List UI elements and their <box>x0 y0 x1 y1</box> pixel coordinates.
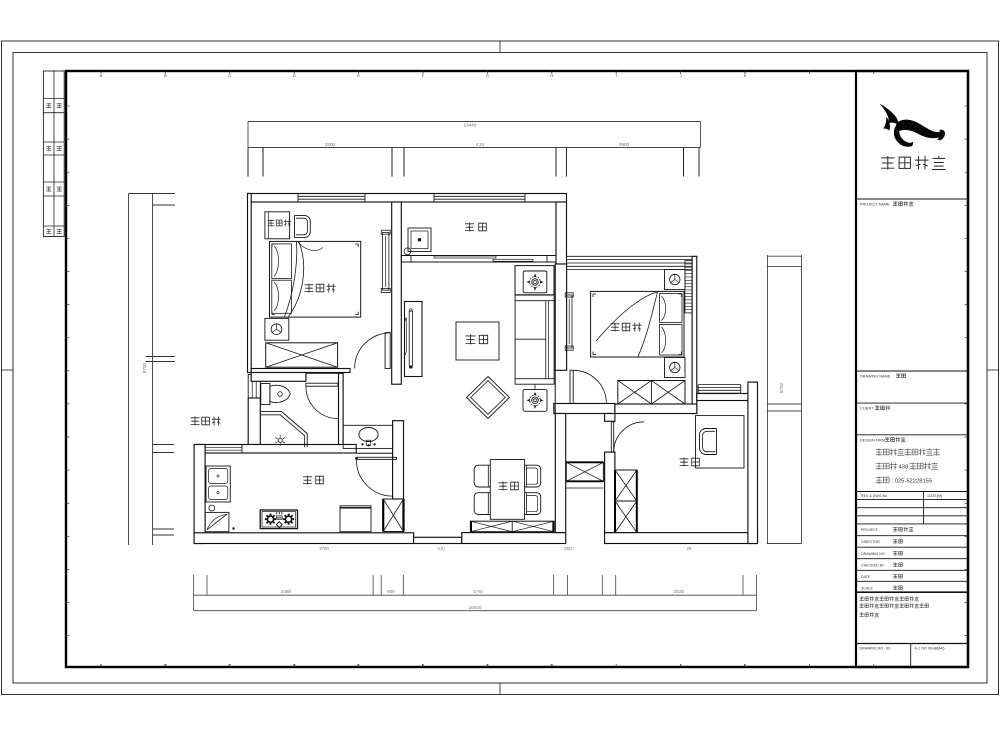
svg-text:10040: 10040 <box>469 605 482 610</box>
svg-text:DATE: DATE <box>861 575 871 579</box>
svg-text:DRAWING NO: DRAWING NO <box>861 552 885 556</box>
svg-text:25: 25 <box>687 546 692 551</box>
svg-text:4;0): 4;0) <box>476 142 484 147</box>
svg-text:3900: 3900 <box>619 142 630 147</box>
svg-text:2480: 2480 <box>281 589 292 594</box>
svg-text:A.C NO: A.C NO <box>915 647 928 651</box>
svg-text:CLIENT: CLIENT <box>860 407 874 411</box>
svg-text:3;0): 3;0) <box>437 546 445 551</box>
svg-text:SCALE: SCALE <box>861 587 873 591</box>
svg-text:8700: 8700 <box>779 382 784 393</box>
svg-text:3300: 3300 <box>325 142 336 147</box>
svg-text:900: 900 <box>387 589 395 594</box>
svg-text:DRAWING NAME: DRAWING NAME <box>860 375 891 379</box>
svg-text:438: 438 <box>899 464 909 470</box>
svg-text:09: 09 <box>886 647 890 651</box>
svg-text:3;*0): 3;*0) <box>473 589 483 594</box>
svg-text:29(1;: 29(1; <box>564 546 574 551</box>
svg-text:8700: 8700 <box>142 362 147 373</box>
svg-text:2700: 2700 <box>319 546 329 551</box>
svg-text:13440: 13440 <box>464 123 477 128</box>
svg-text:: 025-52228155: : 025-52228155 <box>892 478 933 484</box>
svg-text:DESIGN FIRM: DESIGN FIRM <box>860 438 885 442</box>
svg-text:PROJECT NAME: PROJECT NAME <box>860 203 890 207</box>
svg-text:REV & DWG No: REV & DWG No <box>861 494 887 498</box>
svg-text:2520: 2520 <box>674 589 685 594</box>
svg-text:DRAWING NO: DRAWING NO <box>860 647 884 651</box>
svg-text:DATE(M): DATE(M) <box>928 494 943 498</box>
svg-text:PROJECT: PROJECT <box>861 528 879 532</box>
svg-text:CHECKED BY: CHECKED BY <box>861 564 885 568</box>
svg-text:DIRECTOR: DIRECTOR <box>861 540 880 544</box>
svg-text:09-B8846: 09-B8846 <box>928 647 944 651</box>
